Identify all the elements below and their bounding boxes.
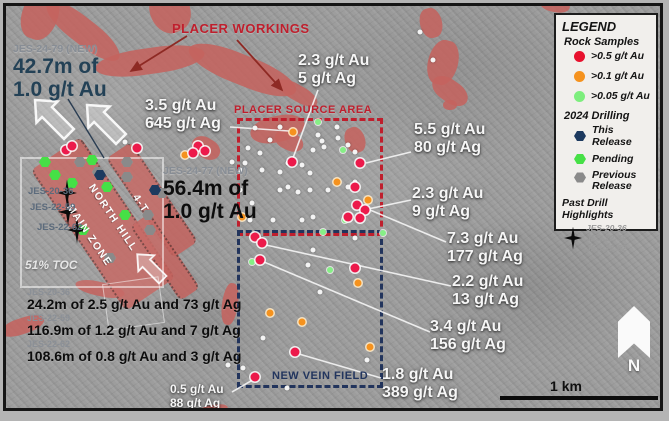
sample-label: 2.3 g/t Au 5 g/t Ag xyxy=(298,52,369,88)
toc-label: 51% TOC xyxy=(25,258,77,272)
rock-sample-dot-white xyxy=(271,218,276,223)
legend-item: >0.05 g/t Au xyxy=(574,90,650,102)
sample-label: 3.5 g/t Au 645 g/t Ag xyxy=(145,97,221,133)
sample-label: 1.8 g/t Au 389 g/t Ag xyxy=(382,366,458,402)
legend-item: >0.1 g/t Au xyxy=(574,70,650,82)
highlight-result: 108.6m of 0.8 g/t Au and 3 g/t Ag xyxy=(27,349,241,364)
sample-au: 2.2 g/t Au xyxy=(452,273,523,291)
rock-sample-dot-orange xyxy=(365,197,372,204)
rock-sample-dot-red xyxy=(291,348,300,357)
sample-ag: 645 g/t Ag xyxy=(145,115,221,133)
sample-ag: 88 g/t Ag xyxy=(170,396,224,410)
drill-collar-previous xyxy=(121,172,133,183)
scale-label: 1 km xyxy=(536,378,596,394)
sample-label: 0.5 g/t Au 88 g/t Ag xyxy=(170,382,224,410)
sample-label: 5.5 g/t Au 80 g/t Ag xyxy=(414,121,485,157)
rock-sample-dot-red xyxy=(201,147,210,156)
rock-sample-dot-green xyxy=(327,267,333,273)
rock-sample-dot-white xyxy=(260,168,265,173)
sample-au: 2.3 g/t Au xyxy=(412,185,483,203)
legend-past-ids: JES-20-36 JES-22-59 JES-22-62 xyxy=(586,223,627,253)
sample-ag: 177 g/t Ag xyxy=(447,248,523,266)
drill-grade: 1.0 g/t Au xyxy=(13,78,107,101)
sample-au: 3.4 g/t Au xyxy=(430,318,506,336)
legend-item-label: >0.05 g/t Au xyxy=(591,90,650,102)
rock-sample-dot-red xyxy=(356,214,365,223)
rock-sample-dot-white xyxy=(311,215,316,220)
rock-sample-dot-white xyxy=(322,145,327,150)
legend-past-item: JES-20-36 JES-22-59 JES-22-62 xyxy=(564,223,650,253)
drill-intercept: 56.4m of xyxy=(163,177,257,200)
legend-item: This Release xyxy=(574,124,650,148)
rock-sample-dot-red xyxy=(133,144,142,153)
rock-sample-dot-white xyxy=(246,146,251,151)
rock-sample-dot-white xyxy=(261,336,266,341)
rock-sample-dot-orange xyxy=(182,152,189,159)
rock-sample-dot-white xyxy=(318,290,323,295)
rock-sample-dot-white xyxy=(353,236,358,241)
rock-sample-dot-white xyxy=(268,138,273,143)
rock-sample-dot-white xyxy=(308,171,313,176)
sample-au: 3.5 g/t Au xyxy=(145,97,221,115)
sample-au: 2.3 g/t Au xyxy=(298,52,369,70)
sample-au: 1.8 g/t Au xyxy=(382,366,458,384)
rock-sample-dot-white xyxy=(320,139,325,144)
star-icon xyxy=(564,227,582,250)
drill-hole-id: JES-24-77 (NEW) xyxy=(163,165,257,177)
rock-sample-dot-white xyxy=(418,30,423,35)
rock-sample-dot-white xyxy=(365,358,370,363)
rock-sample-dot-white xyxy=(278,125,283,130)
sample-au: 0.5 g/t Au xyxy=(170,382,224,396)
rock-sample-dot-white xyxy=(253,126,258,131)
legend-item: Previous Release xyxy=(574,170,650,192)
green-hexagon-icon xyxy=(574,154,586,165)
rock-sample-dot-white xyxy=(311,148,316,153)
sample-au: 5.5 g/t Au xyxy=(414,121,485,139)
rock-sample-dot-white xyxy=(326,188,331,193)
scale-bar xyxy=(500,396,658,400)
rock-sample-dot-green xyxy=(315,119,321,125)
drill-collar-previous xyxy=(121,157,133,168)
legend-item: Pending xyxy=(574,153,650,165)
rock-sample-dot-white xyxy=(335,125,340,130)
rock-sample-dot-orange xyxy=(299,319,306,326)
legend-item-label: Previous Release xyxy=(592,170,650,192)
red-dot-icon xyxy=(574,51,585,62)
rock-sample-dot-red xyxy=(351,183,360,192)
sample-ag: 80 g/t Ag xyxy=(414,139,485,157)
rock-sample-dot-white xyxy=(300,218,305,223)
rock-sample-dot-white xyxy=(346,143,351,148)
sample-label: 3.4 g/t Au 156 g/t Ag xyxy=(430,318,506,354)
rock-sample-dot-red xyxy=(344,213,353,222)
rock-sample-dot-white xyxy=(258,151,263,156)
drill-collar-previous xyxy=(74,157,86,168)
north-letter: N xyxy=(622,356,646,376)
rock-sample-dot-red xyxy=(356,159,365,168)
sample-label: 7.3 g/t Au 177 g/t Ag xyxy=(447,230,523,266)
rock-sample-dot-green xyxy=(380,230,386,236)
drill-collar-previous xyxy=(144,225,156,236)
exploration-map: NORTH HILL MAIN ZONE 4-T PLACER WORKINGS… xyxy=(3,3,663,411)
sample-label: 2.3 g/t Au 9 g/t Ag xyxy=(412,185,483,221)
highlight-result: 24.2m of 2.5 g/t Au and 73 g/t Ag xyxy=(27,297,241,312)
legend-item-label: >0.1 g/t Au xyxy=(591,70,644,82)
sample-ag: 9 g/t Ag xyxy=(412,203,483,221)
navy-hexagon-icon xyxy=(574,131,586,142)
past-id: JES-20-36 xyxy=(586,223,627,233)
rock-sample-dot-white xyxy=(316,133,321,138)
rock-sample-dot-white xyxy=(306,263,311,268)
sample-au: 7.3 g/t Au xyxy=(447,230,523,248)
rock-sample-dot-red xyxy=(189,149,198,158)
sample-ag: 5 g/t Ag xyxy=(298,70,369,88)
legend-item-label: Pending xyxy=(592,153,633,165)
placer-source-area-label: PLACER SOURCE AREA xyxy=(234,104,372,116)
legend-item-label: >0.5 g/t Au xyxy=(591,50,644,62)
rock-sample-dot-white xyxy=(241,366,246,371)
rock-sample-dot-green xyxy=(340,147,346,153)
rock-sample-dot-white xyxy=(123,140,128,145)
highlight-result: 116.9m of 1.2 g/t Au and 7 g/t Ag xyxy=(27,323,241,338)
rock-sample-dot-white xyxy=(285,386,290,391)
rock-sample-dot-orange xyxy=(355,280,362,287)
legend-panel: LEGEND Rock Samples >0.5 g/t Au >0.1 g/t… xyxy=(554,13,658,231)
drill-grade: 1.0 g/t Au xyxy=(163,200,257,223)
past-highlights-block: JES-20-36 24.2m of 2.5 g/t Au and 73 g/t… xyxy=(27,288,241,366)
rock-sample-dot-white xyxy=(230,160,235,165)
rock-sample-dot-white xyxy=(278,188,283,193)
drill-result-jes-24-79: JES-24-79 (NEW) 42.7m of 1.0 g/t Au xyxy=(13,43,107,101)
rock-sample-dot-orange xyxy=(290,129,297,136)
rock-sample-dot-red xyxy=(351,264,360,273)
legend-rock-header: Rock Samples xyxy=(564,36,650,48)
placer-workings-label: PLACER WORKINGS xyxy=(172,21,310,36)
rock-sample-dot-white xyxy=(308,188,313,193)
rock-sample-dot-white xyxy=(286,185,291,190)
gray-hexagon-icon xyxy=(574,172,586,183)
rock-sample-dot-white xyxy=(353,150,358,155)
sample-ag: 156 g/t Ag xyxy=(430,336,506,354)
rock-sample-dot-green xyxy=(320,229,326,235)
rock-sample-dot-green xyxy=(249,259,255,265)
new-vein-field-label: NEW VEIN FIELD xyxy=(272,370,368,382)
rock-sample-dot-red xyxy=(68,142,77,151)
legend-past-header: Past Drill Highlights xyxy=(562,197,650,221)
star-hole-label: JES-22-62 xyxy=(37,222,82,233)
orange-dot-icon xyxy=(574,71,585,82)
drill-collar-pending xyxy=(86,155,98,166)
rock-sample-dot-white xyxy=(336,136,341,141)
rock-sample-dot-red xyxy=(251,373,260,382)
drill-intercept: 42.7m of xyxy=(13,55,107,78)
sample-ag: 13 g/t Ag xyxy=(452,291,523,309)
legend-item-label: This Release xyxy=(592,124,650,148)
drill-collar-pending xyxy=(49,170,61,181)
rock-sample-dot-orange xyxy=(267,310,274,317)
rock-sample-dot-red xyxy=(258,239,267,248)
sample-label: 2.2 g/t Au 13 g/t Ag xyxy=(452,273,523,309)
legend-drilling-header: 2024 Drilling xyxy=(564,110,650,122)
star-hole-label: JES-20-36 xyxy=(28,186,73,197)
past-id: JES-22-59 xyxy=(586,233,627,243)
rock-sample-dot-orange xyxy=(334,179,341,186)
rock-sample-dot-red xyxy=(256,256,265,265)
green-dot-icon xyxy=(574,91,585,102)
legend-title: LEGEND xyxy=(562,19,650,34)
past-id: JES-22-62 xyxy=(586,243,627,253)
rock-sample-dot-white xyxy=(431,58,436,63)
rock-sample-dot-orange xyxy=(367,344,374,351)
drill-collar-pending xyxy=(39,157,51,168)
legend-item: >0.5 g/t Au xyxy=(574,50,650,62)
star-hole-label: JES-22-59 xyxy=(30,202,75,213)
rock-sample-dot-white xyxy=(278,170,283,175)
drill-result-jes-24-77: JES-24-77 (NEW) 56.4m of 1.0 g/t Au xyxy=(163,165,257,223)
drill-hole-id: JES-24-79 (NEW) xyxy=(13,43,107,55)
rock-sample-dot-white xyxy=(296,190,301,195)
drill-collar-pending xyxy=(101,182,113,193)
rock-sample-dot-red xyxy=(288,158,297,167)
sample-ag: 389 g/t Ag xyxy=(382,384,458,402)
rock-sample-dot-white xyxy=(311,248,316,253)
rock-sample-dot-white xyxy=(300,163,305,168)
